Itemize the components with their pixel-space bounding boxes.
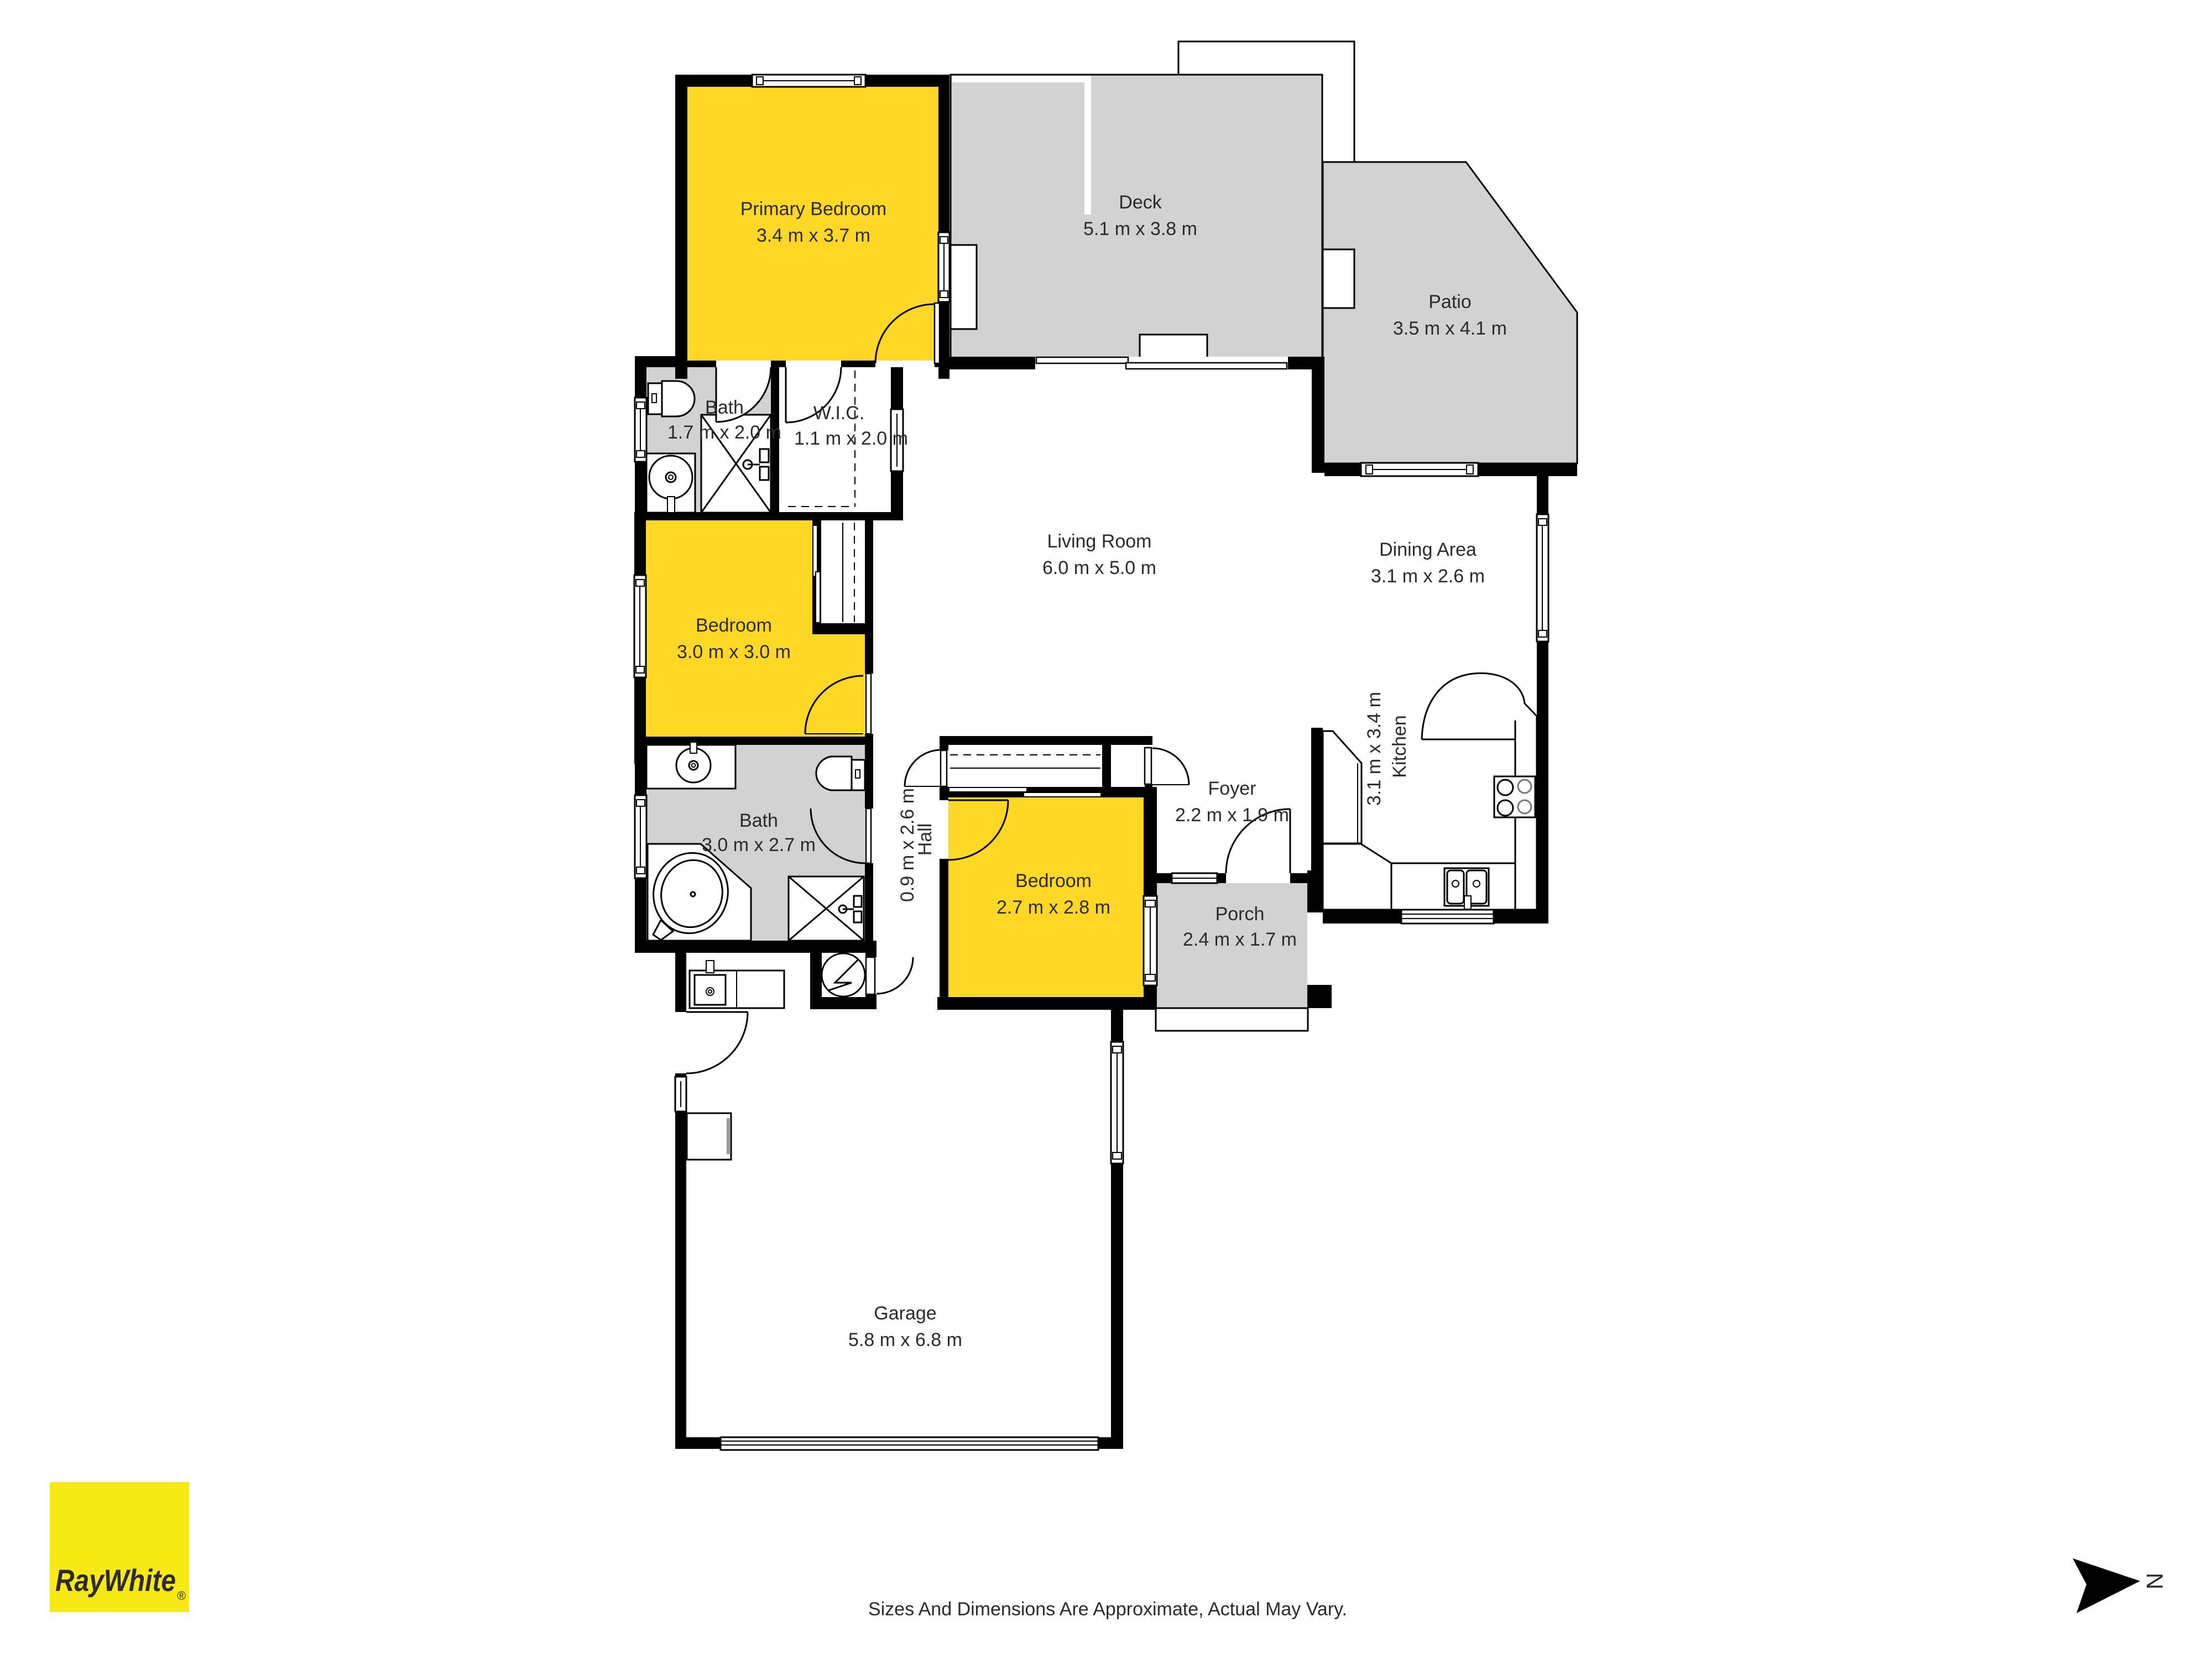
svg-text:5.8 m x 6.8 m: 5.8 m x 6.8 m <box>848 1329 962 1350</box>
svg-text:Porch: Porch <box>1215 904 1265 925</box>
svg-text:3.0 m x 3.0 m: 3.0 m x 3.0 m <box>677 641 791 662</box>
svg-text:3.0 m x 2.7 m: 3.0 m x 2.7 m <box>702 834 816 855</box>
svg-text:Patio: Patio <box>1428 291 1472 312</box>
svg-text:Garage: Garage <box>874 1303 936 1324</box>
svg-text:1.7 m x 2.0 m: 1.7 m x 2.0 m <box>667 422 781 443</box>
svg-text:3.4 m x 3.7 m: 3.4 m x 3.7 m <box>757 225 870 246</box>
svg-text:Deck: Deck <box>1119 192 1162 213</box>
svg-text:2.4 m x 1.7 m: 2.4 m x 1.7 m <box>1183 929 1297 950</box>
svg-text:Sizes And Dimensions Are Appro: Sizes And Dimensions Are Approximate, Ac… <box>868 1599 1347 1620</box>
svg-text:Kitchen: Kitchen <box>1389 715 1410 778</box>
svg-text:3.5 m x 4.1 m: 3.5 m x 4.1 m <box>1393 318 1507 339</box>
svg-text:W.I.C.: W.I.C. <box>813 403 865 424</box>
svg-text:Bedroom: Bedroom <box>1015 870 1092 891</box>
svg-text:3.1 m x 3.4 m: 3.1 m x 3.4 m <box>1364 692 1385 806</box>
svg-text:N: N <box>2142 1573 2168 1589</box>
svg-text:Primary Bedroom: Primary Bedroom <box>740 199 887 220</box>
svg-text:Foyer: Foyer <box>1208 778 1256 799</box>
svg-text:Bath: Bath <box>705 397 744 418</box>
svg-text:1.1 m x 2.0 m: 1.1 m x 2.0 m <box>794 428 908 449</box>
svg-text:Dining Area: Dining Area <box>1379 539 1477 560</box>
svg-text:0.9 m x 2.6 m: 0.9 m x 2.6 m <box>897 788 918 902</box>
svg-text:2.7 m x 2.8 m: 2.7 m x 2.8 m <box>997 897 1110 918</box>
svg-text:5.1 m x 3.8 m: 5.1 m x 3.8 m <box>1083 218 1197 239</box>
svg-text:2.2 m x 1.9 m: 2.2 m x 1.9 m <box>1175 805 1289 826</box>
svg-text:6.0 m x 5.0 m: 6.0 m x 5.0 m <box>1042 557 1156 578</box>
svg-text:®: ® <box>177 1589 186 1603</box>
svg-text:3.1 m x 2.6 m: 3.1 m x 2.6 m <box>1371 566 1485 587</box>
svg-text:Living Room: Living Room <box>1047 531 1152 552</box>
svg-text:Bedroom: Bedroom <box>696 615 772 636</box>
svg-text:Bath: Bath <box>739 810 778 831</box>
svg-text:RayWhite: RayWhite <box>55 1563 176 1598</box>
